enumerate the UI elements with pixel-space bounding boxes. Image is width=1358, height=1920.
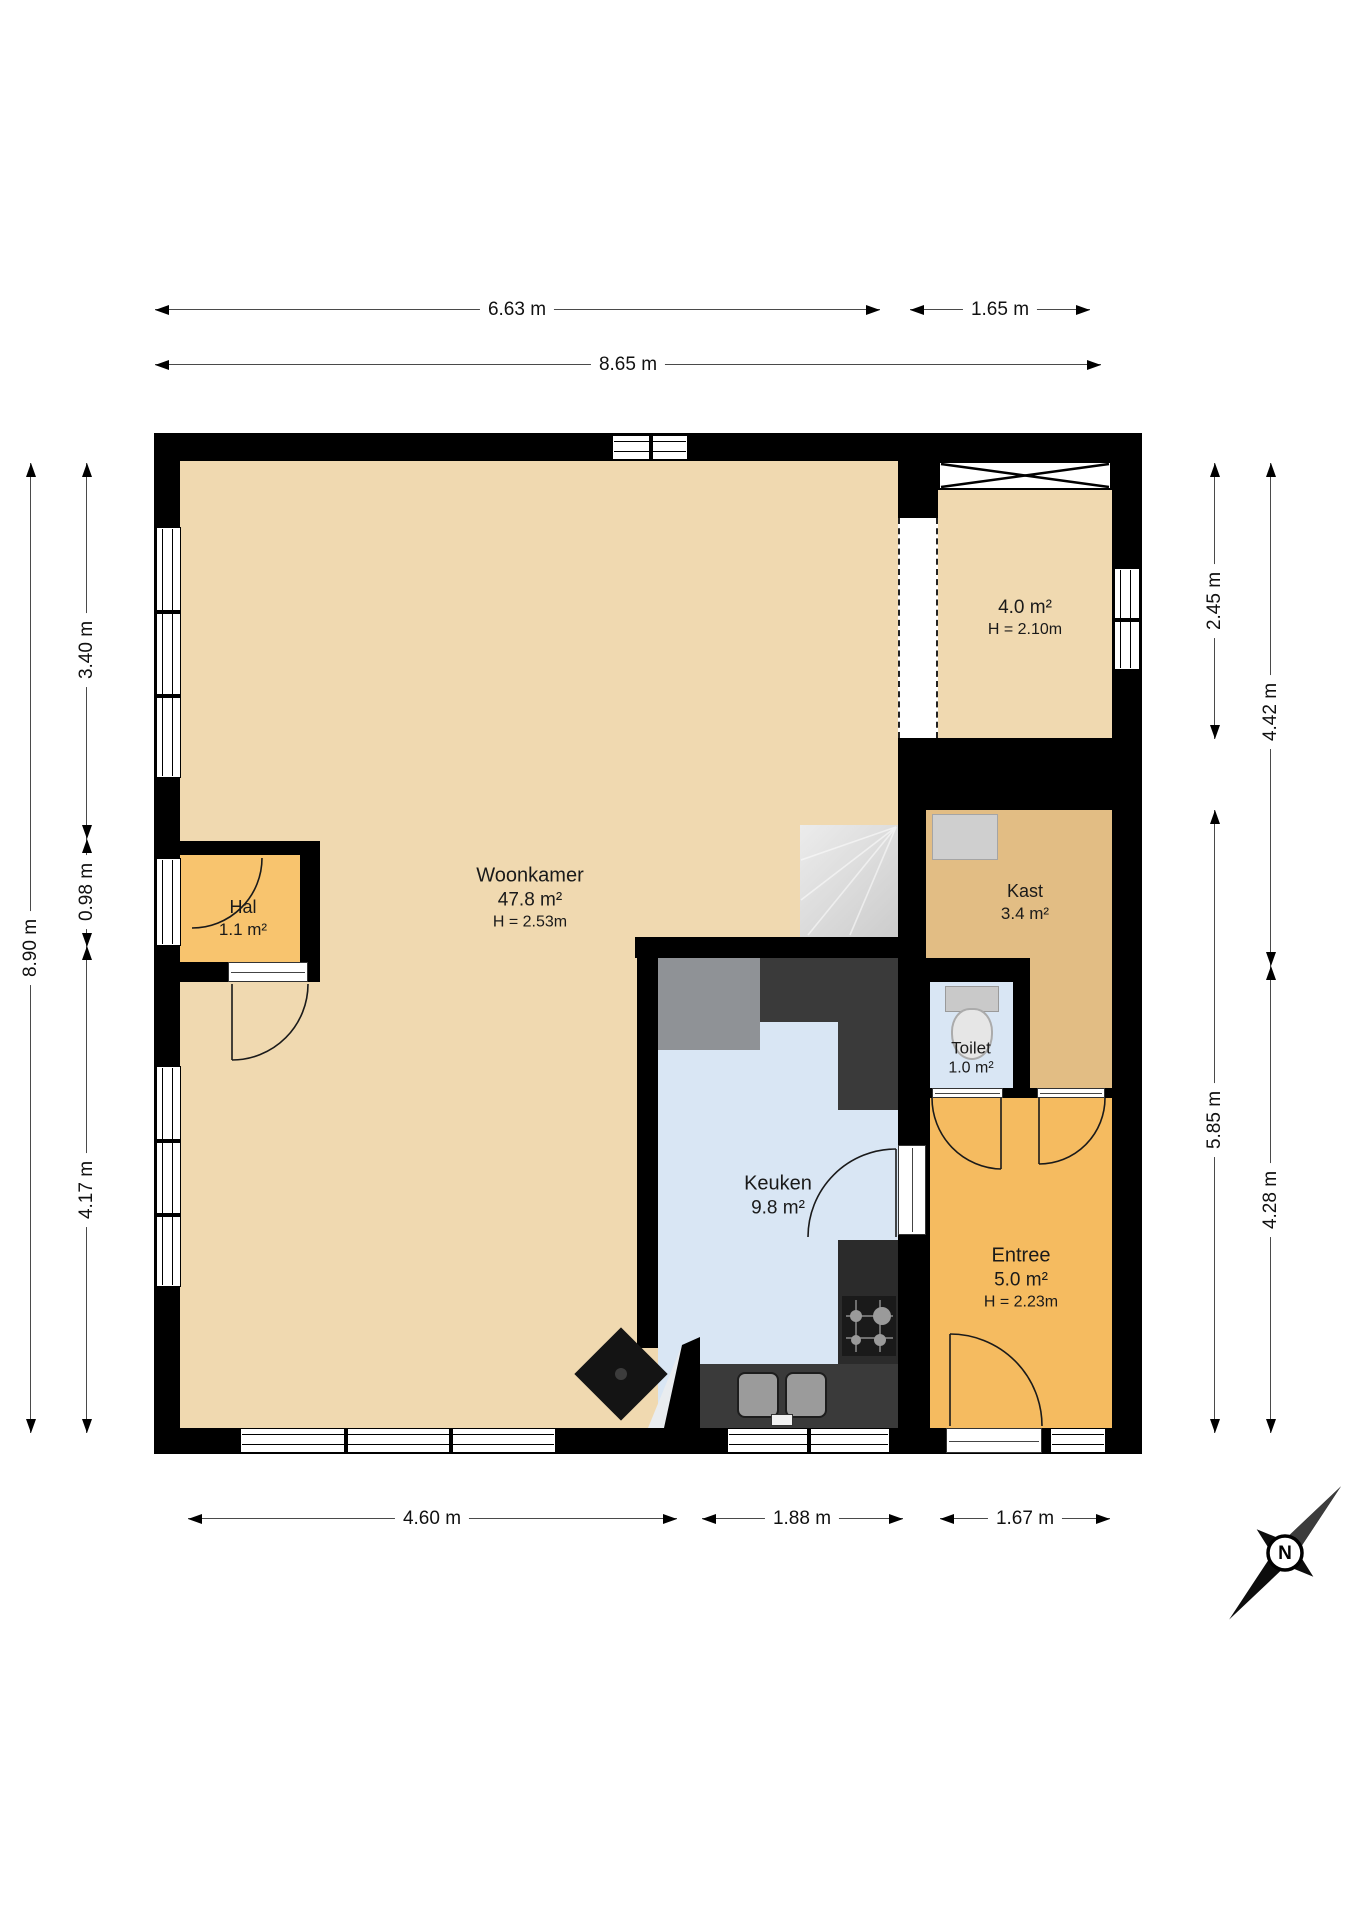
kast-unit — [932, 814, 998, 860]
dim-bottom-left: 4.60 m — [395, 1507, 469, 1531]
kitchen-counter-top — [760, 958, 898, 1022]
window-bottom-entree — [1050, 1428, 1106, 1453]
dim-top-total: 8.65 m — [591, 353, 665, 377]
wall-hal-top — [180, 841, 320, 855]
window-bottom-woonkamer — [240, 1428, 556, 1453]
wall-toilet-right — [1013, 982, 1030, 1098]
wall-hal-right — [300, 841, 320, 982]
dim-right-outer-top: 4.42 m — [1259, 675, 1283, 749]
dim-left-top: 3.40 m — [75, 613, 99, 687]
dim-right-outer-bottom: 4.28 m — [1259, 1163, 1283, 1237]
wall-keuken-top — [635, 937, 898, 958]
label-hal: Hal 1.1 m² — [219, 896, 267, 940]
label-woonkamer: Woonkamer 47.8 m² H = 2.53m — [476, 864, 583, 933]
wall-keuken-left — [637, 958, 658, 1348]
kitchen-appliance-column — [838, 1240, 898, 1364]
window-right-storage — [1114, 568, 1140, 670]
sink-tap — [771, 1414, 793, 1426]
door-keuken-threshold — [898, 1145, 926, 1235]
dim-right-inner-top: 2.45 m — [1203, 564, 1227, 638]
label-storage: 4.0 m² H = 2.10m — [988, 596, 1062, 640]
door-kast-threshold — [1037, 1088, 1105, 1098]
stairs — [800, 825, 898, 937]
open-connection — [898, 518, 938, 738]
dim-left-mid: 0.98 m — [75, 855, 99, 929]
kitchen-counter-gray — [658, 958, 760, 1050]
dim-bottom-mid: 1.88 m — [765, 1507, 839, 1531]
void-x-box — [938, 461, 1112, 490]
compass-north-label: N — [1278, 1543, 1292, 1565]
dim-left-bottom: 4.17 m — [75, 1153, 99, 1227]
dim-top-right: 1.65 m — [963, 298, 1037, 322]
floorplan-canvas: N Woonkamer 47.8 m² H = 2.53m 4.0 m² H =… — [0, 0, 1358, 1920]
wall-toilet-top — [926, 958, 1030, 982]
wall-core-lower — [898, 1235, 926, 1428]
window-left-bottom — [156, 1066, 181, 1287]
label-entree: Entree 5.0 m² H = 2.23m — [984, 1244, 1058, 1313]
sink-basin-right — [785, 1372, 827, 1418]
door-hal-threshold — [228, 962, 308, 982]
dim-right-inner-bottom: 5.85 m — [1203, 1083, 1227, 1157]
window-left-hal — [156, 858, 181, 946]
window-top — [612, 435, 688, 460]
dim-top-left: 6.63 m — [480, 298, 554, 322]
wall-storage-kast — [926, 738, 1112, 810]
door-toilet-threshold — [932, 1088, 1003, 1098]
label-toilet: Toilet 1.0 m² — [948, 1037, 993, 1078]
sink-basin-left — [737, 1372, 779, 1418]
kitchen-counter-right — [838, 1022, 898, 1110]
wall-core-upper — [898, 461, 926, 518]
label-kast: Kast 3.4 m² — [1001, 880, 1049, 924]
front-door-threshold — [946, 1428, 1042, 1453]
dim-bottom-right: 1.67 m — [988, 1507, 1062, 1531]
room-kast-lower — [1030, 958, 1112, 1098]
window-bottom-keuken — [727, 1428, 890, 1453]
window-left-top — [156, 527, 181, 778]
dim-left-total: 8.90 m — [19, 911, 43, 985]
label-keuken: Keuken 9.8 m² — [744, 1172, 812, 1221]
wall-core-mid — [898, 738, 926, 1145]
